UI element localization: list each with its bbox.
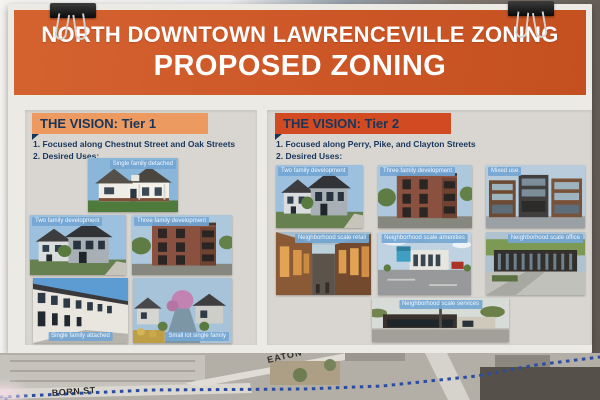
poster-photo-scene: NORTH DOWNTOWN LAWRENCEVILLE ZONING PROP… (0, 0, 600, 400)
tier1-header-bar: THE VISION: Tier 1 (32, 113, 208, 134)
tier2-bullet-1: 1. Focused along Perry, Pike, and Clayto… (276, 139, 476, 149)
photo-label: Two family development (32, 217, 102, 226)
photo-neighborhood-retail: Neighborhood scale retail (276, 232, 371, 295)
photo-single-family-detached: Single family detached (88, 158, 178, 212)
photo-label: Three family development (134, 217, 209, 226)
poster-subtitle: PROPOSED ZONING (14, 50, 586, 83)
photo-label: Three family development (380, 167, 455, 176)
photo-label: Two family development (278, 167, 348, 176)
binder-clip-left (48, 0, 100, 48)
tier2-header-bar: THE VISION: Tier 2 (275, 113, 451, 134)
photo-neighborhood-amenities: Neighborhood scale amenities (378, 232, 471, 295)
photo-label: Neighborhood scale amenities (381, 234, 468, 243)
binder-clip-right (506, 0, 558, 46)
photo-neighborhood-services: Neighborhood scale services (372, 298, 509, 342)
binder-clip-wire (515, 11, 530, 38)
photo-small-lot-single-family: Small lot single family (133, 278, 232, 343)
photo-two-family-tier2: Two family development (276, 165, 363, 228)
photo-label: Mixed use (488, 167, 521, 176)
photo-label: Neighborhood scale office (508, 234, 583, 243)
aerial-map: EATON BORN ST (0, 353, 600, 400)
photo-two-family-tier1: Two family development (30, 215, 126, 275)
tier1-bullet-1: 1. Focused along Chestnut Street and Oak… (33, 139, 235, 149)
foreground-blur (0, 378, 32, 400)
tier2-bullet-2: 2. Desired Uses: (276, 151, 342, 161)
photo-mixed-use: Mixed use (486, 165, 585, 228)
photo-single-family-attached: Single family attached (33, 278, 128, 343)
photo-label: Neighborhood scale services (399, 300, 482, 309)
photo-label: Single family attached (48, 332, 113, 341)
photo-label: Neighborhood scale retail (295, 234, 369, 243)
aerial-map-illustration: EATON BORN ST (0, 353, 600, 400)
photo-label: Small lot single family (165, 332, 229, 341)
photo-label: Single family detached (110, 160, 176, 169)
photo-neighborhood-office: Neighborhood scale office (486, 232, 585, 295)
photo-three-family-tier2: Three family development (378, 165, 472, 228)
photo-three-family-tier1: Three family development (132, 215, 232, 275)
